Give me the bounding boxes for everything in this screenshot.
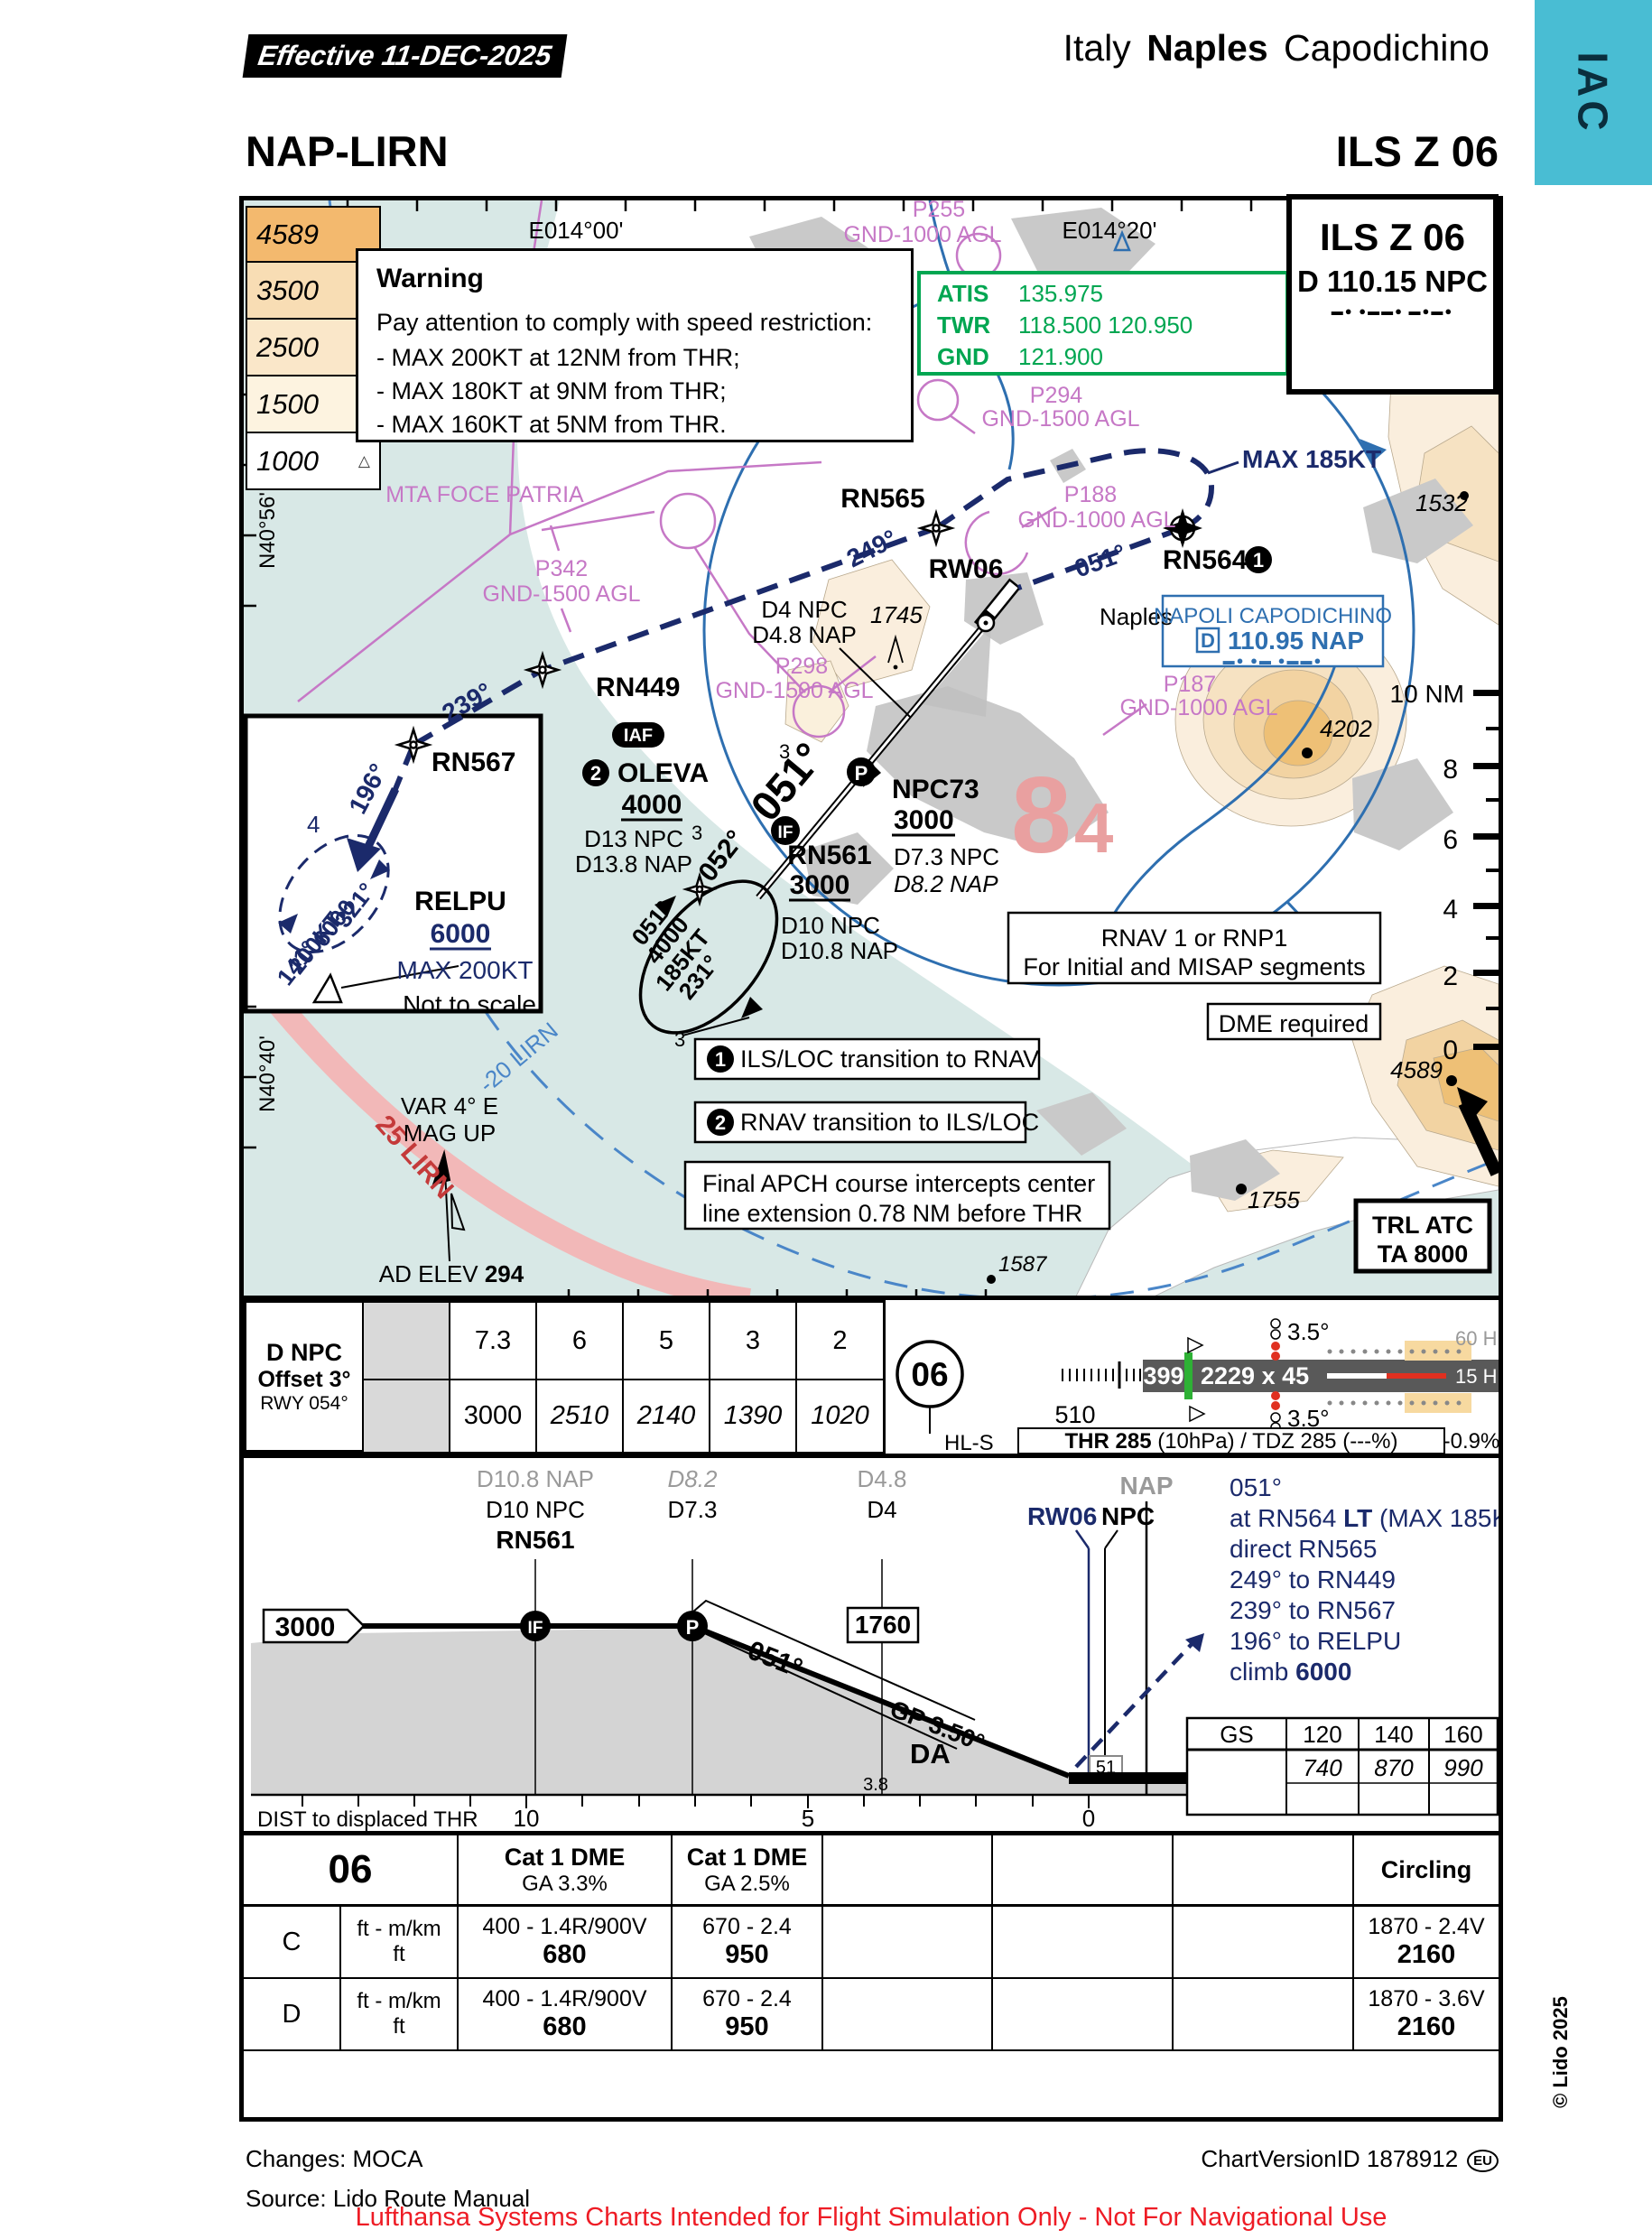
nm10-label: 10 NM	[1390, 680, 1464, 708]
profile-rw06: RW06	[1027, 1502, 1097, 1530]
dist-10: 10	[514, 1805, 540, 1832]
dnpc-a3-val: 2140	[637, 1401, 696, 1431]
gs-120: 120	[1303, 1721, 1341, 1748]
min-d-cat1b: 670 - 2.4950	[673, 1979, 823, 2051]
profile-d48: D4.8	[858, 1465, 907, 1492]
min-d-u2: ft	[393, 2014, 404, 2039]
gs-140: 140	[1374, 1721, 1413, 1748]
p294-agl-label: GND-1500 AGL	[981, 406, 1139, 432]
note1-badge-num: 1	[715, 1048, 726, 1071]
hl15-label: 15 HL	[1455, 1365, 1499, 1388]
relpu-4: 4	[307, 811, 320, 838]
gnd-label: GND	[937, 343, 1018, 371]
oleva-d13: D13 NPC	[584, 825, 683, 852]
da-label: DA	[910, 1738, 951, 1770]
legend-3500: 3500	[256, 274, 319, 307]
warning-intro: Pay attention to comply with speed restr…	[376, 309, 893, 337]
atis-label: ATIS	[937, 280, 1018, 308]
scale-6: 6	[1443, 825, 1458, 855]
npc73-alt: 3000	[894, 805, 954, 835]
papi-angle-top: 3.5°	[1287, 1318, 1330, 1345]
min-empty-row	[244, 2051, 1499, 2117]
oleva-d138: D13.8 NAP	[575, 850, 692, 878]
airport-label: Capodichino	[1284, 27, 1490, 69]
ma-line2b: LT	[1343, 1504, 1372, 1532]
atis-freq: 135.975	[1018, 280, 1103, 308]
relpu-alt: 6000	[431, 919, 491, 949]
simulation-disclaimer: Lufthansa Systems Charts Intended for Fl…	[244, 2203, 1499, 2233]
relpu-name: RELPU	[414, 887, 506, 916]
dnpc-d4-val: 3	[746, 1326, 760, 1356]
min-cat1a-cell: Cat 1 DMEGA 3.3%	[459, 1835, 673, 1907]
rn565-label: RN565	[840, 484, 924, 514]
d4npc-label: D4 NPC	[761, 596, 847, 623]
rw06-label: RW06	[929, 554, 1004, 584]
threshold-arrow-top	[1188, 1338, 1202, 1352]
dnpc-a4: 1390	[710, 1380, 797, 1452]
runway-id: 06	[911, 1356, 948, 1393]
thr-elevation-text: THR 285 (10hPa) / TDZ 285 (---%)	[1065, 1429, 1398, 1454]
min-c-a2: 680	[543, 1940, 586, 1970]
changes-note: Changes: MOCA	[246, 2145, 423, 2173]
dist-axis-label: DIST to displaced THR	[257, 1807, 478, 1832]
hl60-label: 60 HL	[1455, 1327, 1499, 1350]
dnpc-d4: 3	[710, 1303, 797, 1380]
min-d-c1: 1870 - 3.6V	[1368, 1986, 1484, 2012]
dnpc-d3: 5	[624, 1303, 710, 1380]
min-d-empty1	[823, 1979, 993, 2051]
min-ga2: GA 2.5%	[704, 1872, 790, 1897]
note2-text: RNAV transition to ILS/LOC	[740, 1109, 1039, 1136]
napoli-freq: 110.95 NAP	[1228, 627, 1364, 655]
dnpc-d2: 6	[537, 1303, 624, 1380]
profile-nap: NAP	[1119, 1472, 1173, 1500]
dnpc-d5: 2	[797, 1303, 883, 1380]
min-d-circling: 1870 - 3.6V2160	[1354, 1979, 1499, 2051]
min-c-letter: C	[283, 1928, 302, 1957]
effective-date: Effective 11-DEC-2025	[256, 40, 553, 71]
profile-d4: D4	[867, 1496, 896, 1523]
scale-4: 4	[1443, 895, 1458, 924]
rn561-d108: D10.8 NAP	[781, 937, 898, 964]
scale-0: 0	[1443, 1036, 1458, 1065]
if-fix-label: IF	[778, 823, 794, 842]
ils-ident-box: ILS Z 06 D 110.15 NPC ▬● ●▬▬● ▬●▬●	[1286, 194, 1499, 395]
var-line2: MAG UP	[404, 1119, 497, 1147]
legend-2500: 2500	[256, 331, 319, 364]
warning-line2: - MAX 180KT at 9NM from THR;	[376, 377, 893, 405]
dnpc-spacer2	[364, 1380, 450, 1452]
ma-line7a: climb	[1230, 1658, 1295, 1686]
min-c-units: ft - m/kmft	[341, 1907, 459, 1979]
missed-approach-dash	[1076, 1642, 1193, 1767]
runway-dimensions: 2229 x 45	[1201, 1362, 1309, 1389]
relpu-max-speed: MAX 200KT	[397, 956, 534, 984]
minimums-table: 06 Cat 1 DMEGA 3.3% Cat 1 DMEGA 2.5% Cir…	[244, 1835, 1499, 2117]
gs-val-160: 990	[1443, 1754, 1483, 1781]
dnpc-a2: 2510	[537, 1380, 624, 1452]
p188-agl-label: GND-1000 AGL	[1017, 507, 1175, 533]
min-d-cat: D	[244, 1979, 341, 2051]
gnd-freq: 121.900	[1018, 343, 1103, 371]
napoli-name: NAPOLI CAPODICHINO	[1154, 604, 1392, 628]
p342-agl-label: GND-1500 AGL	[482, 581, 640, 607]
min-cat1a: Cat 1 DME	[505, 1844, 626, 1872]
lon-left-label: E014°00'	[528, 217, 623, 244]
min-d-empty3	[1174, 1979, 1354, 2051]
chart-version-id: ChartVersionID 1878912	[1201, 2145, 1458, 2172]
warning-title: Warning	[376, 264, 893, 294]
dnpc-label3: RWY 054°	[260, 1393, 348, 1415]
displaced-distance: 399	[1143, 1362, 1183, 1389]
dme-altitude-table: D NPC Offset 3° RWY 054° 7.3 6 5 3 2 300…	[244, 1300, 886, 1454]
min-c-c2: 2160	[1397, 1940, 1456, 1970]
napoli-morse: ▬● ●▬ ●▬▬●	[1223, 654, 1323, 667]
tab-iac-label: IAC	[1569, 51, 1618, 134]
thr-elev-bold: THR 285	[1065, 1429, 1152, 1454]
p298-agl-label: GND-1500 AGL	[715, 678, 873, 703]
rn561-alt: 3000	[790, 870, 850, 900]
dist-38: 3.8	[863, 1775, 888, 1795]
warning-box: Warning Pay attention to comply with spe…	[356, 248, 914, 442]
min-d-a1: 400 - 1.4R/900V	[482, 1986, 646, 2012]
ma-line7b: 6000	[1295, 1658, 1351, 1686]
ma-line1: 051°	[1230, 1473, 1282, 1501]
scale-8: 8	[1443, 755, 1458, 785]
dnpc-a5: 1020	[797, 1380, 883, 1452]
copyright-text: © Lido 2025	[1549, 1996, 1572, 2108]
p294-label: P294	[1030, 383, 1082, 408]
centerline-red	[1387, 1373, 1446, 1379]
procedure-title: ILS Z 06	[1083, 126, 1499, 176]
chart-version: ChartVersionID 1878912EU	[993, 2145, 1499, 2173]
ils-title: ILS Z 06	[1292, 216, 1493, 259]
rnav-note-line1: RNAV 1 or RNP1	[1101, 924, 1288, 952]
missed-approach-arrow	[1185, 1633, 1204, 1652]
min-d-c2: 2160	[1397, 2012, 1456, 2042]
min-c-cat1b: 670 - 2.4950	[673, 1907, 823, 1979]
profile-d73: D7.3	[668, 1496, 718, 1523]
rn561-label: RN561	[787, 841, 871, 870]
papi-bottom	[1271, 1391, 1280, 1432]
npc73-label: NPC73	[892, 775, 979, 804]
ta-line: TA 8000	[1378, 1240, 1469, 1268]
rn567-label: RN567	[432, 748, 515, 777]
hls-label: HL-S	[944, 1431, 994, 1454]
min-rwy-cell: 06	[244, 1835, 459, 1907]
dnpc-d5-val: 2	[832, 1326, 847, 1356]
npc73-d82: D8.2 NAP	[894, 870, 998, 897]
runway-slope: -0.9%	[1443, 1429, 1499, 1454]
thr-elev-rest: (10hPa) / TDZ 285 (---%)	[1152, 1429, 1398, 1454]
min-rwy: 06	[329, 1847, 373, 1892]
mora-digit-main: 8	[1011, 755, 1072, 876]
ma-line2: at RN564 LT (MAX 185KT)	[1230, 1504, 1499, 1532]
ma-line6: 196° to RELPU	[1230, 1627, 1401, 1655]
profile-runway-bar	[1069, 1772, 1186, 1784]
ad-elev-value: 294	[485, 1260, 524, 1287]
min-d-a2: 680	[543, 2012, 586, 2042]
country-label: Italy	[1063, 27, 1131, 69]
ils-ident: D 110.15 NPC	[1292, 265, 1493, 299]
min-c-b2: 950	[725, 1940, 768, 1970]
rnav-note-line2: For Initial and MISAP segments	[1023, 953, 1365, 980]
var-line1: VAR 4° E	[401, 1092, 498, 1119]
mountain-icon: △	[358, 452, 370, 470]
oleva-label: OLEVA	[617, 758, 709, 788]
eu-badge: EU	[1467, 2150, 1499, 2172]
profile-view: 3000 IF P 051° 1760 GP 3.50° DA D10.8 NA…	[244, 1458, 1499, 1835]
min-d-b2: 950	[725, 2012, 768, 2042]
d48nap-label: D4.8 NAP	[752, 621, 857, 648]
p255-agl-label: GND-1000 AGL	[843, 222, 1001, 247]
min-c-c1: 1870 - 2.4V	[1368, 1914, 1484, 1940]
dist-5: 5	[802, 1805, 814, 1832]
ma-line7: climb 6000	[1230, 1658, 1351, 1686]
dnpc-a2-val: 2510	[551, 1401, 609, 1431]
check-alt-1760: 1760	[855, 1611, 911, 1639]
tab-iac[interactable]: IAC	[1535, 0, 1652, 185]
min-circling: Circling	[1381, 1856, 1472, 1884]
min-circling-cell: Circling	[1354, 1835, 1499, 1907]
min-c-u1: ft - m/km	[357, 1917, 441, 1942]
min-d-b1: 670 - 2.4	[702, 1986, 792, 2012]
iaf-badge-label: IAF	[624, 726, 653, 746]
min-c-empty2	[993, 1907, 1174, 1979]
ma-line3: direct RN565	[1230, 1535, 1377, 1563]
legend-4589: 4589	[256, 218, 319, 251]
dnpc-a5-val: 1020	[811, 1401, 869, 1431]
min-c-empty3	[1174, 1907, 1354, 1979]
profile-terrain	[251, 1628, 1186, 1795]
profile-d82: D8.2	[668, 1465, 718, 1492]
dnpc-d1-val: 7.3	[475, 1326, 511, 1356]
p-fix-label: P	[855, 762, 868, 785]
npc73-d73: D7.3 NPC	[894, 843, 999, 870]
min-c-a1: 400 - 1.4R/900V	[482, 1914, 646, 1940]
displaced-threshold-bar	[1184, 1352, 1193, 1399]
elev-1745: 1745	[870, 601, 923, 628]
p342-label: P342	[535, 556, 588, 581]
note1-ref-num: 1	[1253, 549, 1264, 571]
dnpc-spacer	[364, 1303, 450, 1380]
lat-bottom-label: N40°40'	[255, 1036, 280, 1112]
gs-header: GS	[1220, 1721, 1254, 1748]
rn449-label: RN449	[596, 673, 680, 702]
effective-date-badge: Effective 11-DEC-2025	[243, 34, 567, 78]
ma-line2a: at RN564	[1230, 1504, 1343, 1532]
ad-elev: AD ELEV 294	[379, 1260, 524, 1287]
elev-1587: 1587	[998, 1252, 1048, 1277]
mta-label: MTA FOCE PATRIA	[385, 482, 584, 507]
ma-line4: 249° to RN449	[1230, 1565, 1396, 1593]
min-c-empty1	[823, 1907, 993, 1979]
min-c-cat1a: 400 - 1.4R/900V680	[459, 1907, 673, 1979]
dnpc-label2: Offset 3°	[257, 1367, 350, 1393]
legend-1000: 1000	[256, 445, 319, 478]
stopway-length: 510	[1054, 1401, 1095, 1428]
profile-d108: D10.8 NAP	[477, 1465, 594, 1492]
rw06-fix-dot	[984, 621, 988, 626]
ils-morse: ▬● ●▬▬● ▬●▬●	[1292, 304, 1493, 318]
dnpc-a4-val: 1390	[724, 1401, 783, 1431]
copyright-note: © Lido 2025	[1549, 1996, 1573, 2108]
note2-badge-num: 2	[715, 1111, 726, 1134]
grid-3c: 3	[674, 1028, 685, 1051]
min-d-units: ft - m/kmft	[341, 1979, 459, 2051]
lon-right-label: E014°20'	[1062, 217, 1156, 244]
min-empty-h1	[823, 1835, 993, 1907]
ma-line2c: (MAX 185KT)	[1372, 1504, 1499, 1532]
note3-line1: Final APCH course intercepts center	[702, 1170, 1095, 1197]
runway-diagram: 06 HL-S 399 2229 x 45 15 HL 60 HL 3.5°	[883, 1300, 1499, 1454]
ad-elev-label: AD ELEV	[379, 1260, 485, 1287]
gs-val-120: 740	[1303, 1754, 1342, 1781]
min-d-cat1a: 400 - 1.4R/900V680	[459, 1979, 673, 2051]
city-label: Naples	[1146, 27, 1267, 69]
elev-1755: 1755	[1248, 1186, 1300, 1213]
elev-4202: 4202	[1320, 715, 1372, 742]
p255-label: P255	[913, 200, 965, 222]
note1-text: ILS/LOC transition to RNAV	[740, 1045, 1039, 1073]
dnpc-d2-val: 6	[572, 1326, 587, 1356]
distance-ticks	[302, 1795, 1089, 1808]
dnpc-label-cell: D NPC Offset 3° RWY 054°	[246, 1303, 364, 1452]
oleva-alt: 4000	[622, 790, 682, 820]
p298-label: P298	[775, 654, 828, 679]
dnpc-d1: 7.3	[450, 1303, 537, 1380]
p187-agl-label: GND-1000 AGL	[1119, 695, 1277, 720]
grid-3b: 3	[691, 822, 702, 844]
gs-160: 160	[1443, 1721, 1482, 1748]
papi-top	[1271, 1319, 1280, 1361]
min-c-u2: ft	[393, 1942, 404, 1967]
scale-2: 2	[1443, 962, 1458, 991]
groundspeed-table: GS 120 140 160 740 870 990	[1187, 1718, 1498, 1815]
missed-approach-text: 051° at RN564 LT (MAX 185KT) direct RN56…	[1230, 1473, 1499, 1686]
rn564-label: RN564	[1163, 545, 1248, 575]
approach-chart-page: Effective 11-DEC-2025 Italy Naples Capod…	[0, 0, 1652, 2239]
min-c-cat: C	[244, 1907, 341, 1979]
note2-ref-num: 2	[590, 762, 601, 785]
frequency-box: ATIS135.975 TWR118.500 120.950 GND121.90…	[917, 271, 1289, 376]
profile-d10: D10 NPC	[486, 1496, 585, 1523]
p188-label: P188	[1064, 482, 1117, 507]
min-empty-h2	[993, 1835, 1174, 1907]
twr-freq: 118.500 120.950	[1018, 311, 1193, 339]
dnpc-d3-val: 5	[659, 1326, 673, 1356]
napoli-d: D	[1201, 629, 1215, 652]
min-c-b1: 670 - 2.4	[702, 1914, 792, 1940]
dme-note: DME required	[1219, 1010, 1369, 1037]
grid-3a: 3	[779, 740, 790, 763]
min-empty-h3	[1174, 1835, 1354, 1907]
mora-digit-sub: 4	[1074, 788, 1113, 868]
note3-line2: line extension 0.78 NM before THR	[702, 1200, 1082, 1227]
min-cat1b: Cat 1 DME	[687, 1844, 808, 1872]
profile-p-label: P	[686, 1616, 700, 1639]
twr-label: TWR	[937, 311, 1018, 339]
warning-line1: - MAX 200KT at 12NM from THR;	[376, 344, 893, 372]
profile-if-label: IF	[528, 1619, 543, 1638]
lighting-zone-bottom	[1405, 1393, 1471, 1413]
chart-location: Italy Naples Capodichino	[812, 27, 1490, 70]
gs-val-140: 870	[1374, 1754, 1414, 1781]
dnpc-label1: D NPC	[266, 1339, 342, 1367]
ma-line5: 239° to RN567	[1230, 1596, 1396, 1624]
approach-lights	[1063, 1361, 1140, 1389]
min-d-u1: ft - m/km	[357, 1989, 441, 2014]
not-to-scale: Not to scale	[403, 990, 536, 1018]
min-d-letter: D	[283, 2000, 302, 2030]
centerline-white	[1327, 1373, 1387, 1379]
threshold-arrow-bottom	[1190, 1407, 1204, 1421]
elev-4589: 4589	[1390, 1056, 1443, 1083]
dnpc-a1-val: 3000	[464, 1401, 523, 1431]
legend-1500: 1500	[256, 388, 319, 421]
threshold-lines	[1076, 1501, 1146, 1795]
dnpc-a3: 2140	[624, 1380, 710, 1452]
min-c-circling: 1870 - 2.4V2160	[1354, 1907, 1499, 1979]
p187-label: P187	[1164, 672, 1216, 697]
max185-label: MAX 185KT	[1242, 445, 1381, 473]
min-cat1b-cell: Cat 1 DMEGA 2.5%	[673, 1835, 823, 1907]
lat-top-label: N40°56'	[255, 492, 280, 569]
dnpc-a1: 3000	[450, 1380, 537, 1452]
airport-code: NAP-LIRN	[246, 126, 449, 176]
trl-line: TRL ATC	[1372, 1212, 1473, 1239]
min-d-empty2	[993, 1979, 1174, 2051]
rn561-d10: D10 NPC	[781, 912, 880, 939]
min-ga1: GA 3.3%	[522, 1872, 608, 1897]
elev-1532: 1532	[1415, 489, 1468, 516]
warning-line3: - MAX 160KT at 5NM from THR.	[376, 411, 893, 439]
profile-alt-3000: 3000	[275, 1612, 336, 1642]
profile-rn561: RN561	[496, 1526, 574, 1554]
dist-0: 0	[1082, 1805, 1095, 1832]
